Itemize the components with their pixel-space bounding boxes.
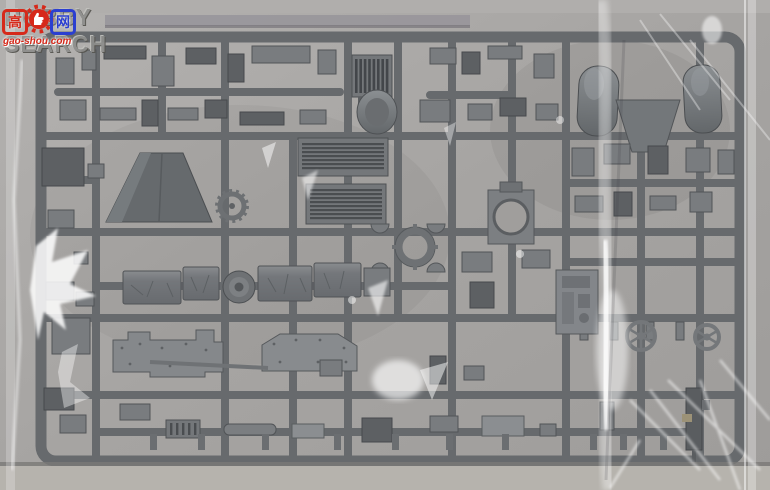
muffler-drum [357, 90, 397, 134]
logo-char-box-right: 网 [50, 9, 76, 35]
logo-url-text: gao-shou.com [3, 36, 71, 47]
photo-model-kit-sprue-in-bag: HOBBY SEARCH 高 网 gao-shou.com [0, 0, 770, 490]
louvered-engine-deck-2 [306, 184, 386, 224]
table-surface [0, 462, 770, 490]
turret-ring-plate [488, 182, 534, 244]
hull-side-plate-right [262, 334, 357, 371]
sprue-photo-graphic [0, 0, 770, 490]
gao-shou-logo: 高 网 gao-shou.com [2, 6, 92, 46]
engine-block [556, 270, 598, 334]
road-wheel [223, 271, 255, 303]
watermark: HOBBY SEARCH 高 网 gao-shou.com [0, 0, 200, 50]
louvered-engine-deck [298, 138, 388, 176]
